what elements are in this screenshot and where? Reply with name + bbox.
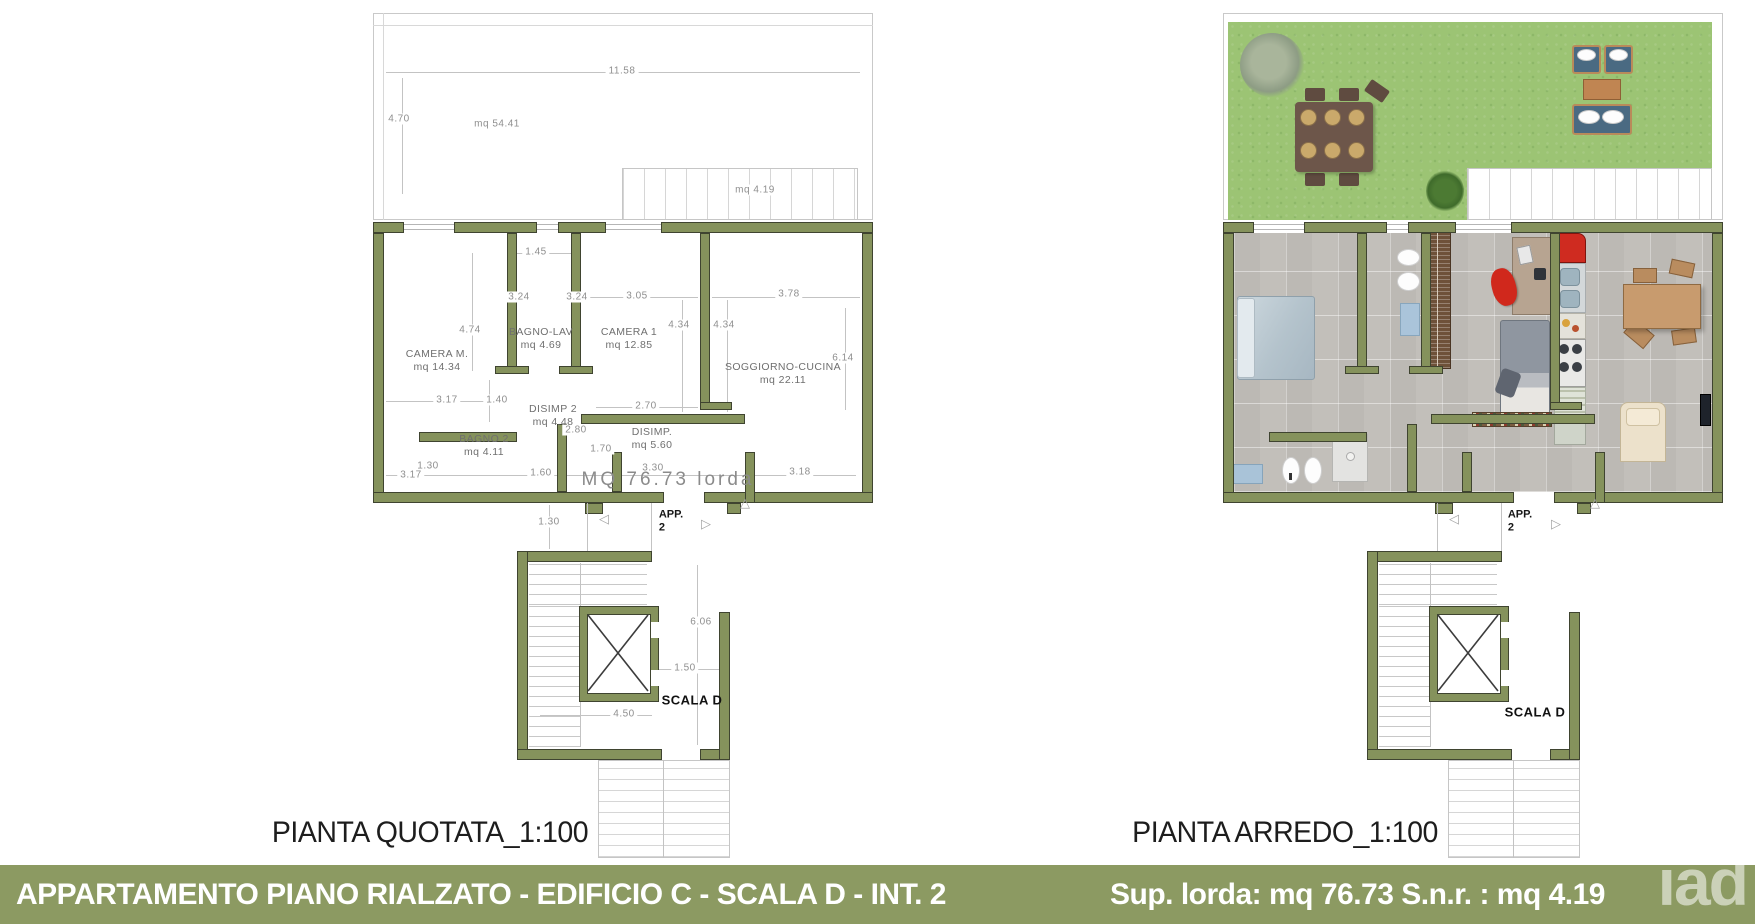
title-banner: APPARTAMENTO PIANO RIALZATO - EDIFICIO C… bbox=[0, 865, 1755, 924]
plan-graphic bbox=[1305, 173, 1325, 186]
plan-graphic: mq 4.11 bbox=[459, 446, 508, 459]
plan-graphic: DISIMP. bbox=[632, 426, 673, 439]
plan-graphic bbox=[1407, 424, 1417, 492]
plan-graphic bbox=[1513, 760, 1514, 858]
door-swing-icon: ▷ bbox=[1551, 516, 1561, 532]
plan-graphic bbox=[1324, 109, 1341, 126]
plan-graphic bbox=[1671, 327, 1697, 345]
banner-surface-stats: Sup. lorda: mq 76.73 S.n.r. : mq 4.19 bbox=[1110, 878, 1605, 912]
dimension-label: 4.70 bbox=[385, 114, 412, 125]
plan-graphic bbox=[1572, 325, 1579, 332]
dining-table bbox=[1623, 284, 1701, 329]
plan-graphic bbox=[1669, 259, 1696, 279]
plan-graphic bbox=[1421, 233, 1431, 370]
bathroom-sink bbox=[1397, 272, 1420, 291]
room-label: DISIMP 2mq 4.48 bbox=[529, 403, 577, 429]
dimension-label: 4.50 bbox=[610, 709, 637, 720]
plan-graphic: CAMERA 1 bbox=[601, 326, 657, 339]
plan-graphic: mq 22.11 bbox=[725, 374, 841, 387]
plan-graphic: CAMERA M. bbox=[406, 348, 469, 361]
plan-graphic bbox=[1569, 612, 1580, 760]
plan-graphic bbox=[1572, 362, 1582, 372]
garden-coffee-table bbox=[1583, 79, 1621, 100]
room-label: SOGGIORNO-CUCINAmq 22.11 bbox=[725, 361, 841, 387]
dimension-label: 11.58 bbox=[606, 66, 639, 77]
plan-graphic bbox=[1550, 402, 1582, 410]
plan-graphic: DISIMP 2 bbox=[529, 403, 577, 416]
plan-graphic bbox=[1437, 233, 1438, 368]
bath-mat bbox=[1233, 464, 1263, 484]
garden-deck bbox=[1467, 168, 1712, 220]
plan-graphic bbox=[1501, 503, 1502, 551]
room-label: BAGNO-LAVmq 4.69 bbox=[509, 326, 573, 352]
garden-dining-set bbox=[1288, 80, 1408, 190]
plan-graphic bbox=[1560, 290, 1580, 308]
floorplan-sheet: ◁ ▷ △ 11.584.701.453.243.243.053.784.744… bbox=[0, 0, 1755, 924]
plan-graphic: 11.584.701.453.243.243.053.784.744.344.3… bbox=[0, 0, 878, 924]
plan-graphic: mq 4.69 bbox=[509, 339, 573, 352]
plan-graphic bbox=[1456, 224, 1511, 230]
door-swing-icon: ◁ bbox=[1449, 511, 1459, 527]
room-label: CAMERA M.mq 14.34 bbox=[406, 348, 469, 374]
room-label: CAMERA 1mq 12.85 bbox=[601, 326, 657, 352]
plan-graphic bbox=[1367, 551, 1378, 760]
plan-graphic bbox=[1578, 110, 1600, 124]
plan-graphic bbox=[1387, 224, 1408, 230]
plan-graphic bbox=[1408, 222, 1456, 233]
plan-graphic bbox=[1339, 88, 1359, 101]
apartment-number-label: APP. 2 bbox=[659, 508, 683, 533]
plan-graphic bbox=[1501, 670, 1509, 686]
tv bbox=[1700, 394, 1711, 426]
elevator-shaft bbox=[1430, 607, 1508, 701]
plan-graphic: SOGGIORNO-CUCINA bbox=[725, 361, 841, 374]
dimension-label: 3.24 bbox=[563, 292, 590, 303]
dimension-label: 1.30 bbox=[535, 517, 562, 528]
plan-graphic bbox=[1364, 79, 1390, 103]
garden-plant bbox=[1426, 170, 1464, 212]
dimension-label: 3.18 bbox=[786, 467, 813, 478]
left-plan-caption: PIANTA QUOTATA_1:100 bbox=[250, 816, 611, 850]
plan-graphic: 2 bbox=[1508, 521, 1532, 534]
plan-graphic bbox=[1300, 142, 1317, 159]
right-plan-caption: PIANTA ARREDO_1:100 bbox=[1100, 816, 1471, 850]
stairwell-label: SCALA D bbox=[1505, 705, 1566, 720]
plan-graphic: mq 14.34 bbox=[406, 361, 469, 374]
elevator-x-icon bbox=[1437, 614, 1499, 692]
stairwell-label: SCALA D bbox=[662, 693, 723, 708]
plan-graphic bbox=[1431, 414, 1595, 424]
plan-graphic bbox=[1559, 362, 1569, 372]
dimension-label: 1.50 bbox=[671, 663, 698, 674]
plan-graphic bbox=[1324, 142, 1341, 159]
door-swing-icon: △ bbox=[1590, 495, 1600, 511]
plan-graphic bbox=[1534, 268, 1546, 280]
plan-graphic bbox=[1559, 344, 1569, 354]
plan-graphic bbox=[1367, 551, 1502, 562]
dimension-label: 4.34 bbox=[665, 320, 692, 331]
dimension-label: 3.17 bbox=[433, 395, 460, 406]
plan-graphic: APP. bbox=[659, 508, 683, 521]
dimension-label: 1.40 bbox=[483, 395, 510, 406]
dimension-label: 3.24 bbox=[505, 292, 532, 303]
plan-graphic bbox=[1339, 173, 1359, 186]
banner-title: APPARTAMENTO PIANO RIALZATO - EDIFICIO C… bbox=[16, 878, 946, 912]
plan-graphic bbox=[1560, 268, 1580, 286]
plan-graphic bbox=[1223, 492, 1514, 503]
dimension-label: 3.05 bbox=[623, 291, 650, 302]
plan-graphic bbox=[1511, 222, 1723, 233]
plan-graphic bbox=[1633, 268, 1657, 283]
plan-graphic: mq 4.48 bbox=[529, 416, 577, 429]
plan-graphic bbox=[1712, 233, 1723, 503]
gross-area-label: MQ 76.73 lorda bbox=[582, 469, 755, 491]
plan-graphic bbox=[1254, 224, 1304, 230]
dimension-label: 1.60 bbox=[527, 468, 554, 479]
stair-treads bbox=[1379, 605, 1430, 747]
stair-treads bbox=[1379, 563, 1497, 605]
dimension-label: 3.17 bbox=[397, 470, 424, 481]
plan-graphic bbox=[1437, 503, 1438, 551]
dimension-label: 4.34 bbox=[710, 320, 737, 331]
room-label: BAGNO 2mq 4.11 bbox=[459, 433, 508, 459]
area-label: mq 4.19 bbox=[732, 185, 778, 196]
plan-graphic bbox=[1300, 109, 1317, 126]
plan-graphic bbox=[1289, 473, 1292, 480]
plan-graphic bbox=[1223, 233, 1234, 503]
left-plan-quotata: ◁ ▷ △ 11.584.701.453.243.243.053.784.744… bbox=[0, 0, 878, 924]
dimension-label: 1.45 bbox=[522, 247, 549, 258]
plan-graphic bbox=[1269, 432, 1367, 442]
plan-graphic bbox=[1305, 88, 1325, 101]
master-bed-pillows bbox=[1237, 298, 1255, 378]
plan-graphic: BAGNO-LAV bbox=[509, 326, 573, 339]
room-label: DISIMP.mq 5.60 bbox=[632, 426, 673, 452]
plan-graphic bbox=[1501, 622, 1509, 638]
plan-graphic bbox=[1572, 344, 1582, 354]
plan-graphic bbox=[1626, 408, 1660, 426]
plan-graphic bbox=[1554, 421, 1586, 445]
dimension-label: 4.74 bbox=[456, 325, 483, 336]
apartment-number-label: APP. 2 bbox=[1508, 508, 1532, 533]
plan-graphic bbox=[1409, 366, 1443, 374]
dining-set bbox=[1618, 255, 1718, 355]
dimension-label: 3.78 bbox=[775, 289, 802, 300]
plan-graphic bbox=[1462, 452, 1472, 492]
plan-graphic bbox=[1346, 452, 1355, 461]
garden-lounge-set bbox=[1568, 40, 1648, 140]
plan-graphic: mq 5.60 bbox=[632, 439, 673, 452]
area-label: mq 54.41 bbox=[471, 119, 523, 130]
dimension-label: 2.70 bbox=[632, 401, 659, 412]
bathroom-mat bbox=[1400, 303, 1420, 336]
plan-graphic bbox=[1577, 503, 1591, 514]
plan-graphic bbox=[1348, 142, 1365, 159]
plan-graphic: 2 bbox=[659, 521, 683, 534]
dimension-label: 6.06 bbox=[687, 617, 714, 628]
plan-graphic bbox=[1367, 749, 1512, 760]
plan-graphic bbox=[1602, 110, 1624, 124]
agency-watermark: iad bbox=[1658, 849, 1747, 915]
plan-graphic: mq 12.85 bbox=[601, 339, 657, 352]
plan-graphic bbox=[1562, 319, 1570, 327]
plan-graphic bbox=[1577, 49, 1596, 61]
plan-graphic bbox=[1357, 233, 1367, 370]
plan-graphic: BAGNO 2 bbox=[459, 433, 508, 446]
plan-graphic bbox=[1550, 233, 1560, 406]
plan-graphic bbox=[1554, 492, 1723, 503]
dimension-label: 1.70 bbox=[587, 444, 614, 455]
bathroom-sink bbox=[1397, 249, 1420, 266]
plan-graphic bbox=[1345, 366, 1379, 374]
bidet bbox=[1304, 457, 1322, 484]
plan-graphic bbox=[1609, 49, 1628, 61]
plan-graphic: APP. bbox=[1508, 508, 1532, 521]
plan-graphic bbox=[1304, 222, 1387, 233]
right-plan-arredo: ◁ ▷ △ APP. 2 SCALA D PIANTA ARREDO_1:100 bbox=[878, 0, 1755, 924]
plan-graphic bbox=[1223, 222, 1254, 233]
plan-graphic bbox=[1348, 109, 1365, 126]
